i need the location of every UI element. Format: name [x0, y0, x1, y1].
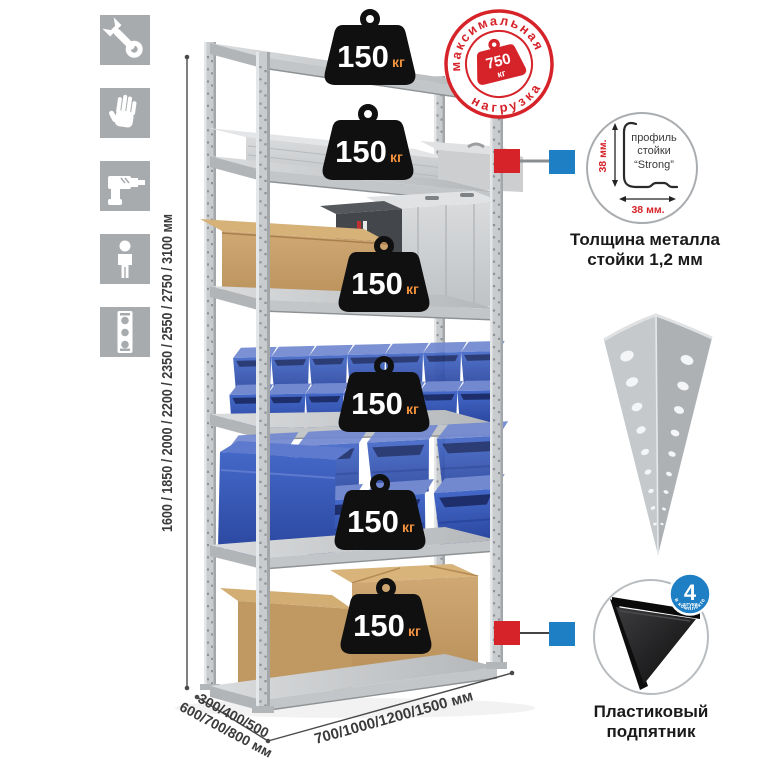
svg-text:150: 150 — [353, 608, 405, 643]
product-infographic: 1600 / 1850 / 2000 / 2200 / 2350 / 2550 … — [0, 0, 765, 765]
sidebar-icons — [100, 15, 150, 357]
angle-post-photo — [604, 315, 712, 555]
callout-bottom — [494, 621, 575, 646]
red-marker — [494, 149, 520, 173]
weight-badge: 150 кг — [323, 107, 414, 180]
svg-text:150: 150 — [347, 504, 399, 539]
drill-icon — [100, 161, 150, 211]
svg-text:150: 150 — [351, 266, 403, 301]
height-dimension-label: 1600 / 1850 / 2000 / 2200 / 2350 / 2550 … — [159, 214, 176, 532]
gloves-icon — [100, 88, 150, 138]
svg-text:кг: кг — [408, 623, 421, 639]
blue-marker — [549, 622, 575, 646]
svg-text:150: 150 — [337, 39, 389, 74]
svg-text:150: 150 — [351, 386, 403, 421]
svg-text:“Strong”: “Strong” — [634, 159, 674, 171]
plastic-foot-detail: 4 штуки в комплекте Пластиковый подпятни… — [594, 574, 711, 742]
post-profile-detail: 38 мм. 38 мм. профиль стойки “Strong” То… — [570, 113, 720, 269]
infographic-svg: 1600 / 1850 / 2000 / 2200 / 2350 / 2550 … — [0, 0, 765, 765]
blue-marker — [549, 150, 575, 174]
quantity-badge: 4 штуки в комплекте — [670, 574, 711, 615]
svg-text:стойки: стойки — [637, 145, 671, 157]
svg-text:кг: кг — [406, 281, 419, 297]
wrench-icon — [100, 15, 150, 65]
level-icon — [100, 307, 150, 357]
svg-text:150: 150 — [335, 134, 387, 169]
height-dimension: 1600 / 1850 / 2000 / 2200 / 2350 / 2550 … — [159, 55, 189, 691]
max-load-stamp: максимальная нагрузка 750 кг — [435, 0, 563, 128]
person-icon — [100, 234, 150, 284]
svg-text:профиль: профиль — [631, 132, 677, 144]
svg-text:кг: кг — [402, 519, 415, 535]
profile-dim-horizontal: 38 мм. — [631, 204, 664, 216]
foot-caption-line2: подпятник — [607, 722, 696, 741]
callout-top — [494, 149, 575, 174]
profile-caption-line1: Толщина металла — [570, 230, 720, 249]
red-marker — [494, 621, 520, 645]
foot-caption-line1: Пластиковый — [594, 702, 709, 721]
svg-text:кг: кг — [390, 149, 403, 165]
weight-badge: 150 кг — [325, 12, 416, 85]
profile-caption-line2: стойки 1,2 мм — [587, 250, 703, 269]
svg-text:кг: кг — [406, 401, 419, 417]
profile-dim-vertical: 38 мм. — [597, 139, 609, 172]
svg-text:кг: кг — [392, 54, 405, 70]
